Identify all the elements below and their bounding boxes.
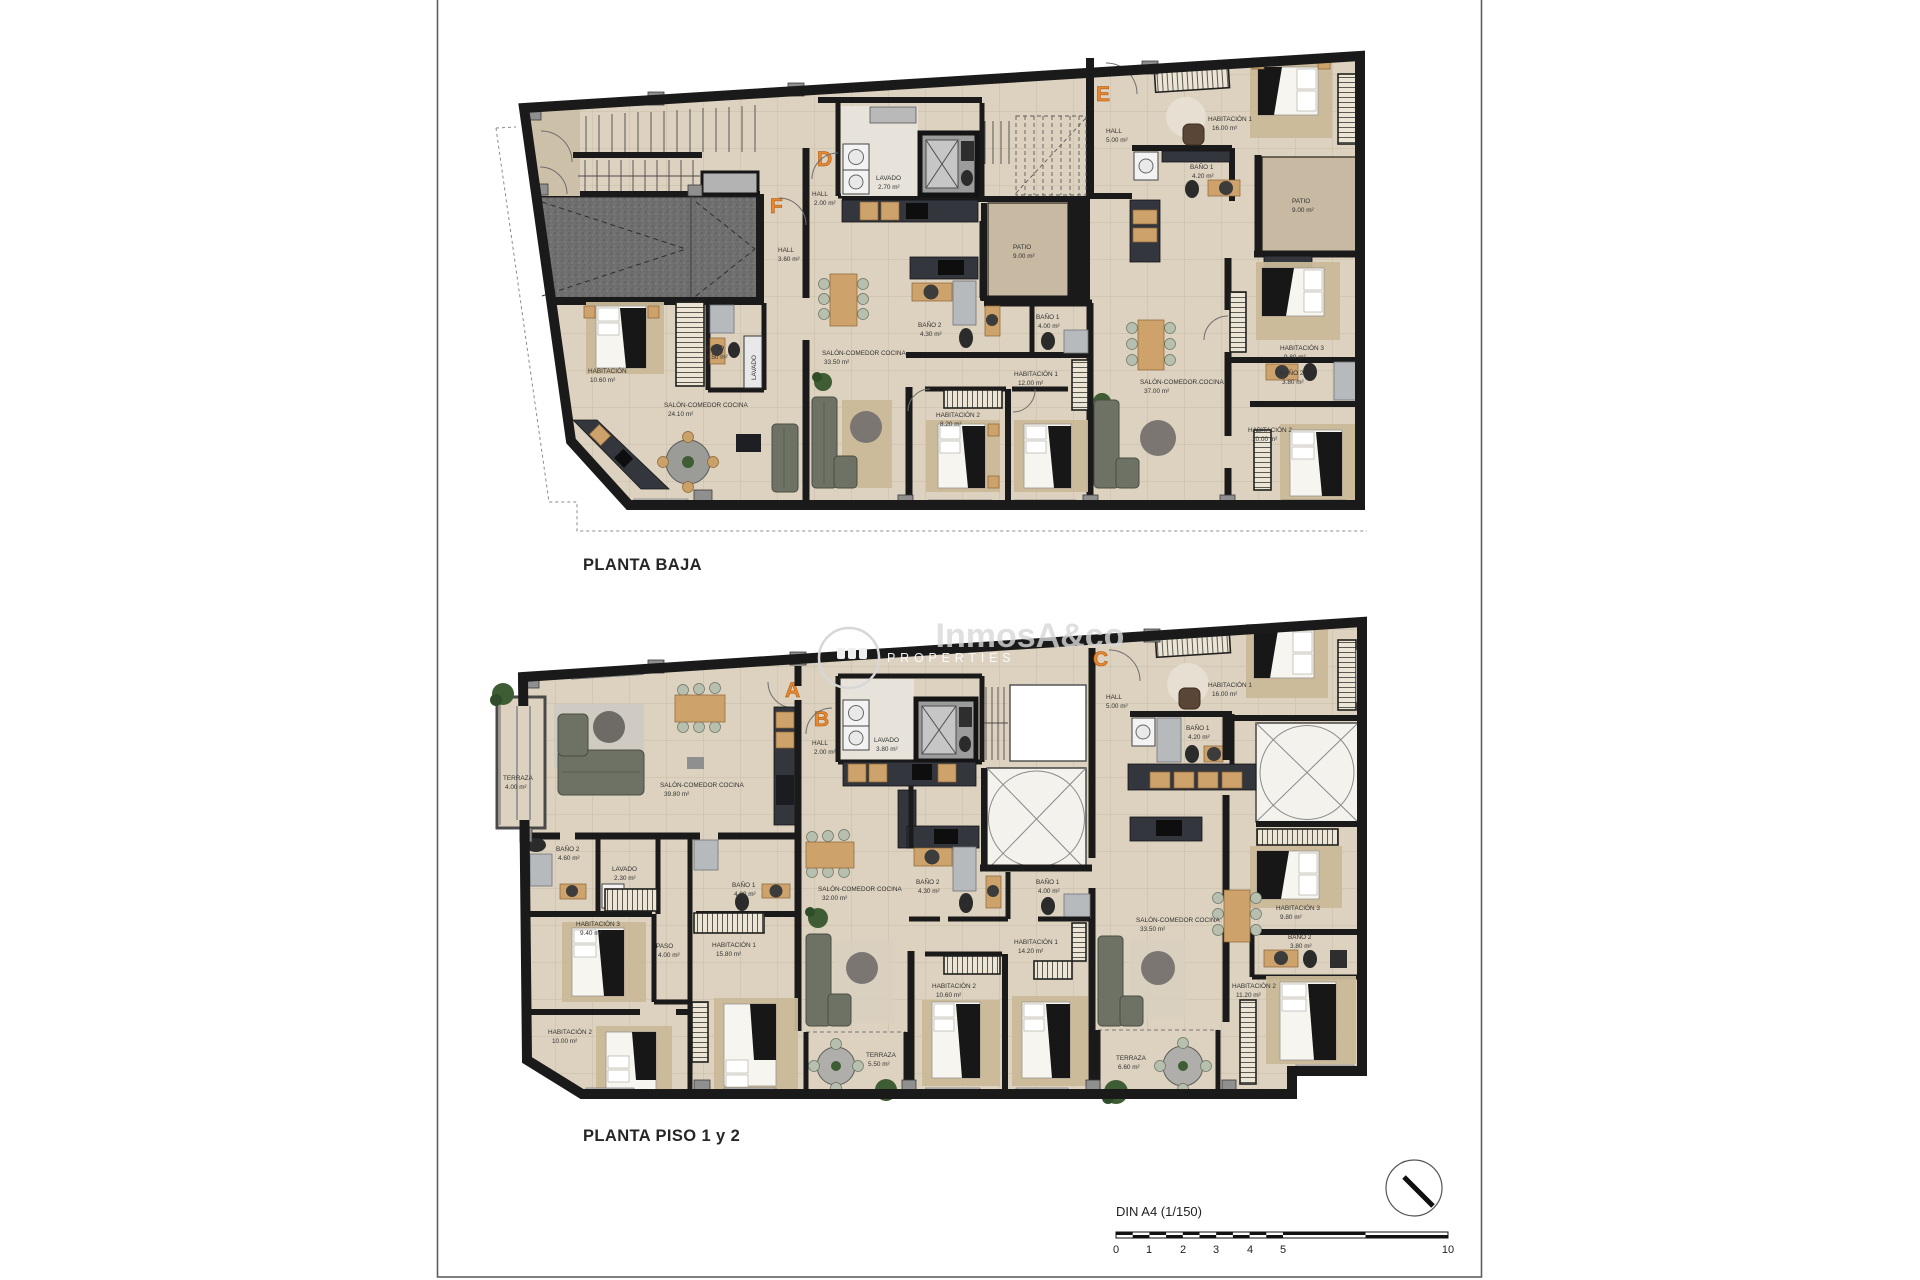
svg-text:SALÓN-COMEDOR.COCINA: SALÓN-COMEDOR.COCINA: [1140, 377, 1225, 386]
svg-text:TERRAZA: TERRAZA: [1116, 1055, 1147, 1062]
svg-text:10.60 m²: 10.60 m²: [590, 377, 615, 384]
svg-text:9.80 m²: 9.80 m²: [1280, 914, 1302, 921]
svg-text:3.80 m²: 3.80 m²: [1282, 379, 1304, 386]
svg-text:HABITACIÓN 2: HABITACIÓN 2: [932, 981, 976, 990]
svg-text:5.00 m²: 5.00 m²: [1106, 703, 1128, 710]
svg-text:4.00 m²: 4.00 m²: [1038, 323, 1060, 330]
svg-text:5.50 m²: 5.50 m²: [868, 1061, 890, 1068]
svg-text:3.50 m²: 3.50 m²: [706, 354, 728, 361]
svg-text:SALÓN-COMEDOR COCINA: SALÓN-COMEDOR COCINA: [1136, 915, 1221, 924]
svg-text:12.00 m²: 12.00 m²: [1018, 380, 1043, 387]
svg-text:DIN A4 (1/150): DIN A4 (1/150): [1116, 1204, 1202, 1219]
svg-text:10.60 m²: 10.60 m²: [936, 992, 961, 999]
svg-text:4.00 m²: 4.00 m²: [505, 784, 527, 791]
svg-text:8.20 m²: 8.20 m²: [940, 421, 962, 428]
svg-text:2.00 m²: 2.00 m²: [814, 749, 836, 756]
svg-text:HABITACIÓN 2: HABITACIÓN 2: [936, 410, 980, 419]
svg-text:4.20 m²: 4.20 m²: [1192, 173, 1214, 180]
svg-text:HABITACIÓN 1: HABITACIÓN 1: [1014, 937, 1058, 946]
svg-text:4.20 m²: 4.20 m²: [1188, 734, 1210, 741]
svg-text:BAÑO 1: BAÑO 1: [732, 880, 756, 889]
svg-text:LAVADO: LAVADO: [612, 866, 637, 873]
svg-text:HABITACIÓN 1: HABITACIÓN 1: [1014, 369, 1058, 378]
svg-text:16.00 m²: 16.00 m²: [1212, 691, 1237, 698]
svg-text:24.10 m²: 24.10 m²: [668, 411, 693, 418]
svg-text:BAÑO 2: BAÑO 2: [918, 320, 942, 329]
svg-text:SALÓN-COMEDOR COCINA: SALÓN-COMEDOR COCINA: [664, 400, 749, 409]
svg-text:BAÑO 2: BAÑO 2: [1288, 932, 1312, 941]
svg-text:BAÑO 1: BAÑO 1: [1190, 162, 1214, 171]
svg-text:E: E: [1096, 83, 1110, 106]
svg-text:BAÑO 2: BAÑO 2: [916, 877, 940, 886]
svg-text:B: B: [814, 708, 829, 731]
svg-text:HABITACIÓN 2: HABITACIÓN 2: [548, 1027, 592, 1036]
svg-text:2.00 m²: 2.00 m²: [814, 200, 836, 207]
svg-text:LAVADO: LAVADO: [751, 355, 758, 380]
svg-text:HALL: HALL: [812, 191, 828, 198]
svg-text:33.50 m²: 33.50 m²: [1140, 926, 1165, 933]
svg-text:39.80 m²: 39.80 m²: [664, 791, 689, 798]
svg-text:HABITACIÓN 1: HABITACIÓN 1: [712, 940, 756, 949]
svg-text:HALL: HALL: [812, 740, 828, 747]
svg-text:PATIO: PATIO: [1292, 198, 1310, 205]
svg-text:2: 2: [1180, 1244, 1186, 1256]
svg-text:14.20 m²: 14.20 m²: [1018, 948, 1043, 955]
svg-text:HABITACIÓN 2: HABITACIÓN 2: [1248, 425, 1292, 434]
svg-text:PLANTA PISO 1 y 2: PLANTA PISO 1 y 2: [583, 1127, 740, 1145]
svg-text:HABITACIÓN 3: HABITACIÓN 3: [1280, 343, 1324, 352]
svg-text:TERRAZA: TERRAZA: [866, 1052, 897, 1059]
svg-text:4.60 m²: 4.60 m²: [558, 855, 580, 862]
svg-text:InmosA&co: InmosA&co: [936, 617, 1125, 655]
svg-text:16.00 m²: 16.00 m²: [1212, 125, 1237, 132]
svg-text:6.60 m²: 6.60 m²: [1118, 1064, 1140, 1071]
svg-text:2.70 m²: 2.70 m²: [878, 184, 900, 191]
svg-text:HABITACIÓN 1: HABITACIÓN 1: [1208, 114, 1252, 123]
svg-text:SALÓN-COMEDOR COCINA: SALÓN-COMEDOR COCINA: [660, 780, 745, 789]
svg-text:BAÑO: BAÑO: [706, 343, 724, 352]
svg-text:3.80 m²: 3.80 m²: [876, 746, 898, 753]
svg-text:4.00 m²: 4.00 m²: [1038, 888, 1060, 895]
svg-text:4.90 m²: 4.90 m²: [734, 891, 756, 898]
svg-text:4.30 m²: 4.30 m²: [920, 331, 942, 338]
svg-text:PLANTA BAJA: PLANTA BAJA: [583, 556, 702, 574]
svg-text:PASO: PASO: [656, 943, 673, 950]
svg-text:BAÑO 1: BAÑO 1: [1186, 723, 1210, 732]
svg-text:10.00 m²: 10.00 m²: [1252, 436, 1277, 443]
svg-text:LAVADO: LAVADO: [876, 175, 901, 182]
svg-text:HALL: HALL: [1106, 128, 1122, 135]
svg-text:33.50 m²: 33.50 m²: [824, 359, 849, 366]
svg-text:4.00 m²: 4.00 m²: [658, 952, 680, 959]
svg-text:BAÑO 2: BAÑO 2: [1280, 368, 1304, 377]
svg-text:9.80 m²: 9.80 m²: [1284, 354, 1306, 361]
svg-text:HABITACIÓN 2: HABITACIÓN 2: [1232, 981, 1276, 990]
svg-text:37.00 m²: 37.00 m²: [1144, 388, 1169, 395]
svg-text:32.00 m²: 32.00 m²: [822, 895, 847, 902]
svg-text:5.00 m²: 5.00 m²: [1106, 137, 1128, 144]
svg-text:HABITACIÓN 3: HABITACIÓN 3: [1276, 903, 1320, 912]
svg-text:3.60 m²: 3.60 m²: [778, 256, 800, 263]
svg-text:HABITACIÓN 3: HABITACIÓN 3: [576, 919, 620, 928]
svg-text:BAÑO 1: BAÑO 1: [1036, 312, 1060, 321]
svg-text:2.30 m²: 2.30 m²: [614, 875, 636, 882]
svg-text:3: 3: [1213, 1244, 1219, 1256]
svg-text:SALÓN-COMEDOR COCINA: SALÓN-COMEDOR COCINA: [818, 884, 903, 893]
svg-text:HABITACIÓN: HABITACIÓN: [588, 366, 627, 375]
svg-text:TERRAZA: TERRAZA: [503, 775, 534, 782]
svg-text:LAVADO: LAVADO: [874, 737, 899, 744]
svg-text:SALÓN-COMEDOR COCINA: SALÓN-COMEDOR COCINA: [822, 348, 907, 357]
svg-text:BAÑO 2: BAÑO 2: [556, 844, 580, 853]
svg-text:D: D: [817, 148, 832, 171]
svg-text:BAÑO 1: BAÑO 1: [1036, 877, 1060, 886]
svg-text:9.00 m²: 9.00 m²: [1013, 253, 1035, 260]
svg-text:9.00 m²: 9.00 m²: [1292, 207, 1314, 214]
svg-text:HALL: HALL: [1106, 694, 1122, 701]
svg-text:10.00 m²: 10.00 m²: [552, 1038, 577, 1045]
svg-text:5: 5: [1280, 1244, 1286, 1256]
svg-text:4: 4: [1247, 1244, 1253, 1256]
svg-text:0: 0: [1113, 1244, 1119, 1256]
svg-text:9.40 m²: 9.40 m²: [580, 930, 602, 937]
svg-text:1: 1: [1146, 1244, 1152, 1256]
svg-text:HABITACIÓN 1: HABITACIÓN 1: [1208, 680, 1252, 689]
svg-text:HALL: HALL: [778, 247, 794, 254]
svg-text:3.80 m²: 3.80 m²: [1290, 943, 1312, 950]
svg-text:PROPERTIES: PROPERTIES: [887, 651, 1015, 665]
svg-text:10: 10: [1442, 1244, 1454, 1256]
svg-text:PATIO: PATIO: [1013, 244, 1031, 251]
svg-text:4.30 m²: 4.30 m²: [918, 888, 940, 895]
svg-text:15.80 m²: 15.80 m²: [716, 951, 741, 958]
svg-text:11.20 m²: 11.20 m²: [1236, 992, 1261, 999]
